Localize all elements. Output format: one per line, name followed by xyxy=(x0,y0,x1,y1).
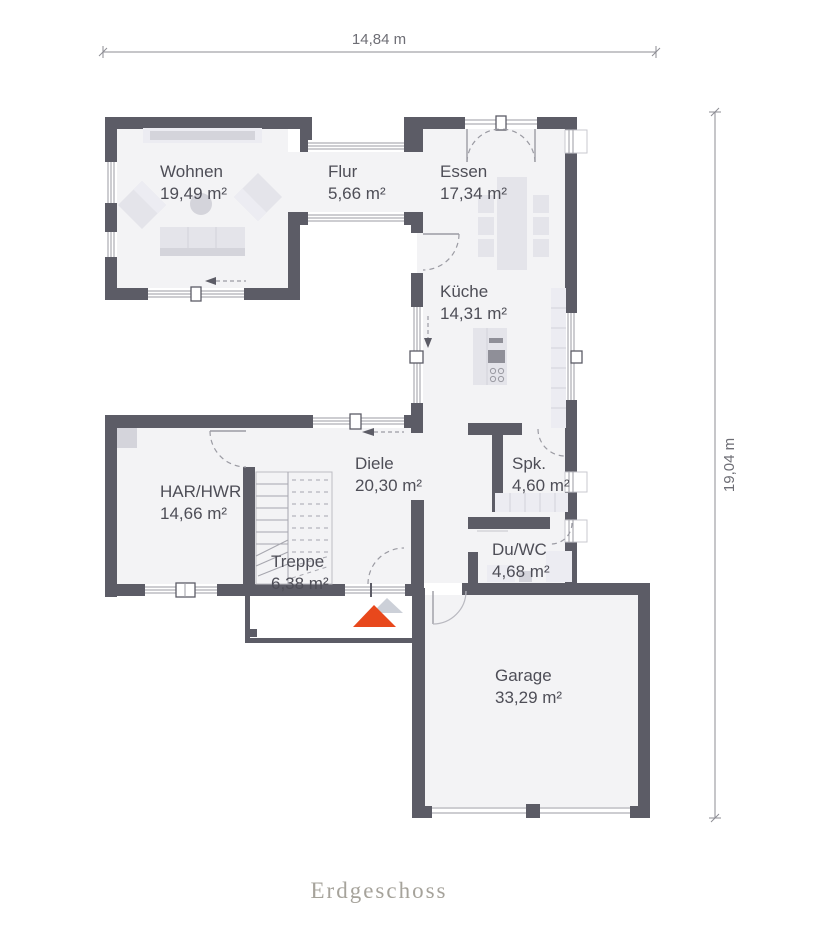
sofa xyxy=(160,227,245,256)
dimension-width: 14,84 m xyxy=(99,31,660,58)
chair xyxy=(533,239,549,257)
floor-flur xyxy=(288,152,423,212)
room-area: 17,34 m² xyxy=(440,184,507,203)
room-area: 19,49 m² xyxy=(160,184,227,203)
room-name: Flur xyxy=(328,162,358,181)
window-wohnen-left-2 xyxy=(105,232,117,257)
kitchen-island xyxy=(473,328,507,385)
room-area: 4,60 m² xyxy=(512,476,570,495)
kitchen-counter xyxy=(551,288,566,428)
room-name: HAR/HWR xyxy=(160,482,241,501)
chair xyxy=(533,195,549,213)
room-area: 4,68 m² xyxy=(492,562,550,581)
room-name: Diele xyxy=(355,454,394,473)
window-wohnen-bottom xyxy=(148,287,244,301)
room-name: Essen xyxy=(440,162,487,181)
window-wohnen-left-1 xyxy=(105,162,117,203)
brand-logo-triangles xyxy=(353,598,403,627)
room-area: 5,66 m² xyxy=(328,184,386,203)
furniture-har xyxy=(117,428,137,448)
room-area: 20,30 m² xyxy=(355,476,422,495)
window-diele-top xyxy=(313,414,404,429)
window-kueche-right xyxy=(565,313,582,400)
dimension-width-label: 14,84 m xyxy=(352,31,406,48)
window-flur-bottom xyxy=(308,212,404,225)
furniture-spk xyxy=(495,493,568,512)
shower xyxy=(546,551,572,582)
room-name: Wohnen xyxy=(160,162,223,181)
porch-border-bottom xyxy=(245,638,412,643)
floorplan-page: Wohnen 19,49 m² Flur 5,66 m² Essen 17,34… xyxy=(0,0,831,950)
room-name: Küche xyxy=(440,282,488,301)
dimension-height: 19,04 m xyxy=(709,108,738,822)
chair xyxy=(478,239,494,257)
room-name: Du/WC xyxy=(492,540,547,559)
floorplan-drawing: Wohnen 19,49 m² Flur 5,66 m² Essen 17,34… xyxy=(0,0,831,950)
room-area: 14,31 m² xyxy=(440,304,507,323)
dimension-height-label: 19,04 m xyxy=(721,438,738,492)
room-area: 6,38 m² xyxy=(271,574,329,593)
room-area: 33,29 m² xyxy=(495,688,562,707)
chair xyxy=(533,217,549,235)
room-name: Spk. xyxy=(512,454,546,473)
room-name: Garage xyxy=(495,666,552,685)
floor-title: Erdgeschoss xyxy=(311,878,448,903)
garage-door-post xyxy=(526,804,540,818)
pantry-shelf xyxy=(495,493,568,512)
window-essen-right xyxy=(565,130,587,153)
room-area: 14,66 m² xyxy=(160,504,227,523)
window-kueche-courtyard xyxy=(410,307,423,403)
window-har-bottom xyxy=(145,583,217,597)
entrance-porch xyxy=(245,596,412,643)
shaft xyxy=(117,428,137,448)
window-flur-top xyxy=(308,140,404,152)
window-duwc-right xyxy=(565,520,587,542)
porch-post xyxy=(249,629,257,637)
chair xyxy=(478,217,494,235)
room-name: Treppe xyxy=(271,552,324,571)
